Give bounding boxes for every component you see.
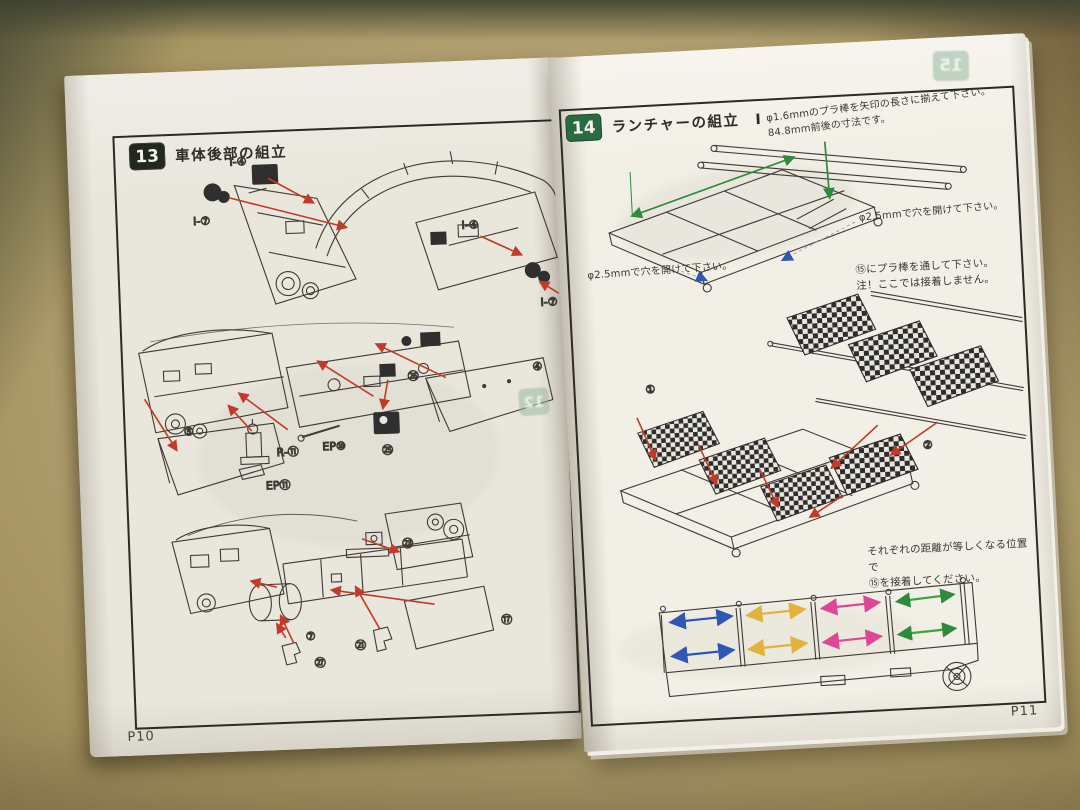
panel-mounting-diagram: ① ② xyxy=(615,364,1032,563)
page-number-p11: P11 xyxy=(1010,703,1038,719)
left-page-assembly-diagrams: I-④ I-⑦ I-④ I-⑦ xyxy=(114,121,578,724)
part-label: I-⑦ xyxy=(193,214,211,228)
part-label: ④ xyxy=(532,360,542,373)
part-label: ㉑ xyxy=(355,639,366,652)
part-label: ㉓ xyxy=(402,537,413,550)
panels-on-rod-diagram xyxy=(765,284,1026,415)
part-label: EP⑪ xyxy=(266,479,291,493)
show-through-step-15-badge: 15 xyxy=(933,51,970,82)
part-label: ㉖ xyxy=(408,370,419,383)
part-label: I-④ xyxy=(229,155,247,169)
part-label: ② xyxy=(922,438,933,452)
part-label: ⑦ xyxy=(305,630,315,643)
part-label: ① xyxy=(645,383,656,397)
part-label: R-⑪ xyxy=(276,445,299,459)
page-number-p10: P10 xyxy=(127,729,155,745)
part-label: I-⑦ xyxy=(540,295,558,309)
photo-of-instruction-booklet: 13 車体後部の組立 xyxy=(0,0,1080,810)
part-label: ⑤ xyxy=(184,425,194,438)
left-page-border-frame: 13 車体後部の組立 xyxy=(112,119,580,730)
spacing-side-view-diagram xyxy=(658,577,979,706)
part-label: ⑰ xyxy=(501,613,512,626)
hull-rear-top-diagram: I-④ I-⑦ I-④ I-⑦ xyxy=(191,143,563,322)
part-label: EP⑩ xyxy=(322,439,346,453)
right-page-border-frame: 14 ランチャーの組立 Ⅰ φ1.6mmのプラ棒を矢印の長さに揃えて下さい。 8… xyxy=(559,86,1047,727)
launcher-assembly-diagrams: ① ② xyxy=(561,88,1045,725)
hull-rear-bottom-diagram: ㉓ ㉑ ⑰ ⑦ ㉗ xyxy=(171,501,514,675)
right-page: 15 14 ランチャーの組立 Ⅰ φ1.6mmのプラ棒を矢印の長さに揃えて下さい… xyxy=(548,33,1062,752)
launcher-frame-diagram xyxy=(605,132,972,297)
left-page: 13 車体後部の組立 xyxy=(64,57,582,757)
hull-rear-middle-diagram: ㉖ ㉕ ④ ⑤ R-⑪ EP⑩ EP⑪ xyxy=(138,315,556,497)
part-label: ㉗ xyxy=(314,656,325,669)
part-label: I-④ xyxy=(461,218,479,232)
show-through-step-12-badge: 12 xyxy=(518,387,550,416)
part-label: ㉕ xyxy=(382,444,393,457)
